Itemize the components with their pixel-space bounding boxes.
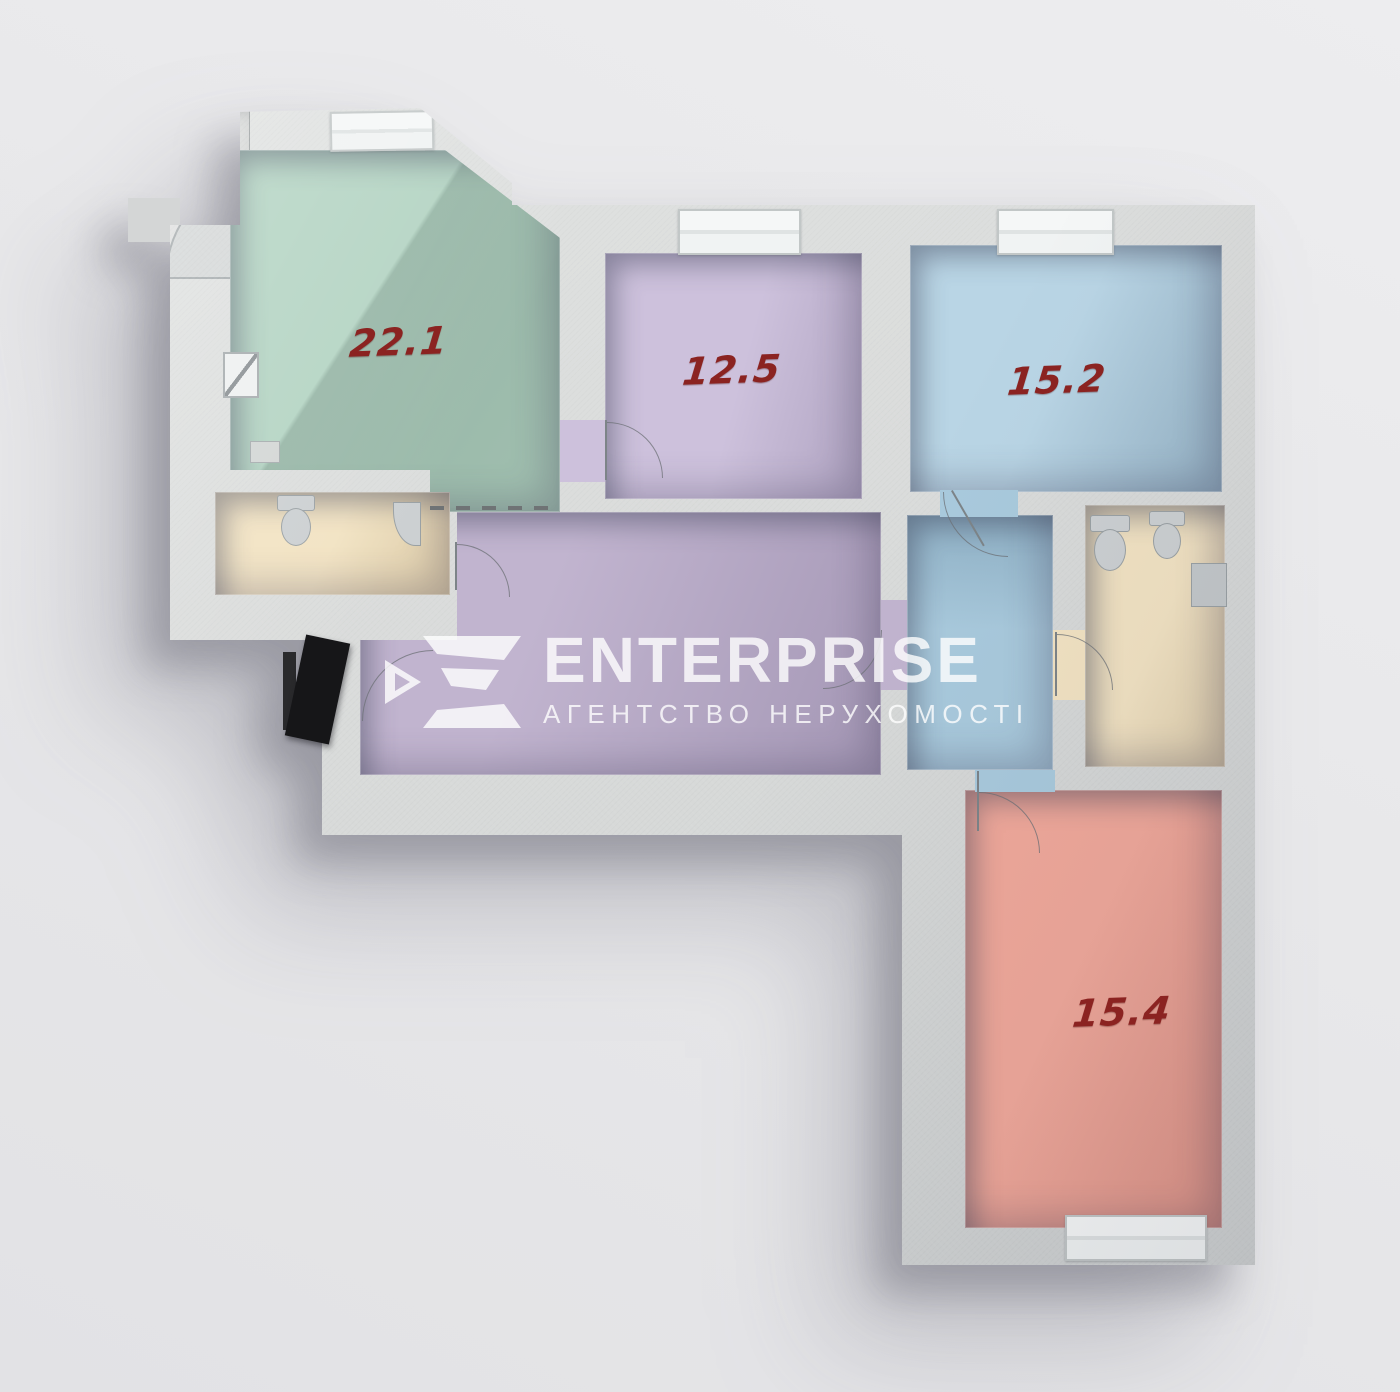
door-opening xyxy=(560,420,605,482)
toilet xyxy=(1094,529,1126,571)
window xyxy=(678,209,801,255)
open-boundary-dashed-line xyxy=(430,506,560,510)
floor-plan-scene: 22.1 12.5 15.2 15.4 ENTERPRISE АГЕНТСТВО… xyxy=(0,0,1400,1392)
door-opening xyxy=(975,770,1055,792)
window xyxy=(1065,1215,1207,1261)
bidet xyxy=(1153,523,1181,559)
room-area-label: 12.5 xyxy=(680,346,783,393)
apartment-plan: 22.1 12.5 15.2 15.4 xyxy=(0,0,1400,1392)
boiler-cabinet xyxy=(1191,563,1227,607)
toilet xyxy=(281,508,311,546)
electrical-panel-icon xyxy=(223,352,259,398)
room-area-label: 15.4 xyxy=(1070,988,1173,1035)
wall-fixture xyxy=(250,441,280,463)
room-area-label: 15.2 xyxy=(1005,356,1108,403)
window xyxy=(997,209,1114,255)
door-opening xyxy=(881,600,907,690)
shower-tray xyxy=(165,105,250,175)
room-area-label: 22.1 xyxy=(347,318,450,365)
bay-window xyxy=(330,110,435,152)
corridor-floor xyxy=(907,515,1053,770)
